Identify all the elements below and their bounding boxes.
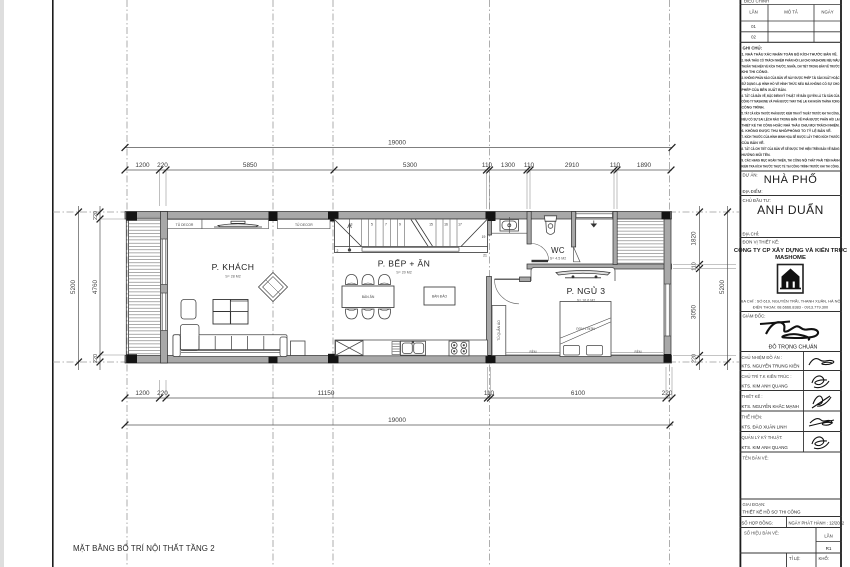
svg-text:GIÁM ĐỐC:: GIÁM ĐỐC: bbox=[743, 314, 766, 319]
svg-text:S= 28 M2: S= 28 M2 bbox=[225, 275, 240, 279]
svg-text:110: 110 bbox=[610, 162, 621, 169]
svg-text:ĐỖ TRỌNG CHUẨN: ĐỖ TRỌNG CHUẨN bbox=[769, 344, 818, 351]
svg-text:PHÉP CỦA BÊN XUẤT BẢN.: PHÉP CỦA BÊN XUẤT BẢN. bbox=[742, 87, 787, 92]
svg-text:SỬ DỤNG LẠI HÌNH HỒ VỀ HÌNH TH: SỬ DỤNG LẠI HÌNH HỒ VỀ HÌNH THỨC NẾU MÀ … bbox=[742, 81, 840, 86]
svg-text:9. CÁC HẠNG MỤC HOÀN THIỆN, TH: 9. CÁC HẠNG MỤC HOÀN THIỆN, THI CÔNG NỘI… bbox=[742, 158, 840, 163]
svg-text:TỦ QUẦN ÁO: TỦ QUẦN ÁO bbox=[496, 320, 501, 341]
svg-text:ĐƠN VỊ THIẾT KẾ:: ĐƠN VỊ THIẾT KẾ: bbox=[743, 240, 780, 245]
svg-text:110: 110 bbox=[484, 390, 495, 397]
svg-text:19: 19 bbox=[482, 235, 486, 239]
svg-text:5: 5 bbox=[371, 223, 373, 227]
svg-text:NẾU CÓ SỰ SAI LỆCH NÀO TRONG B: NẾU CÓ SỰ SAI LỆCH NÀO TRONG BẢN VẼ PHẢI… bbox=[742, 116, 840, 121]
svg-text:220: 220 bbox=[93, 211, 99, 220]
svg-text:220: 220 bbox=[93, 354, 99, 363]
svg-text:P. NGỦ 3: P. NGỦ 3 bbox=[567, 285, 606, 296]
svg-text:3050: 3050 bbox=[691, 304, 698, 319]
svg-text:5200: 5200 bbox=[70, 279, 77, 294]
svg-text:1890: 1890 bbox=[637, 162, 652, 169]
svg-text:RÈM: RÈM bbox=[529, 349, 536, 354]
svg-text:02: 02 bbox=[751, 35, 756, 40]
svg-text:KTS. KIM ANH QUANG: KTS. KIM ANH QUANG bbox=[742, 445, 789, 450]
svg-text:8. TẤT CẢ CHI TIẾT CỦA BẢN VẼ: 8. TẤT CẢ CHI TIẾT CỦA BẢN VẼ SẼ ĐƯỢC TH… bbox=[742, 146, 840, 151]
svg-text:ĐỊA CHỈ : SỐ 619, NGUYỄN TRÃI,: ĐỊA CHỈ : SỐ 619, NGUYỄN TRÃI, THANH XUÂ… bbox=[739, 299, 841, 304]
svg-text:17: 17 bbox=[458, 223, 462, 227]
svg-text:CHỦ NHIỆM ĐỒ ÁN :: CHỦ NHIỆM ĐỒ ÁN : bbox=[742, 355, 782, 360]
svg-text:R1: R1 bbox=[826, 546, 832, 551]
svg-text:CÔNG TRÌNH.: CÔNG TRÌNH. bbox=[742, 105, 765, 110]
svg-text:220: 220 bbox=[157, 390, 168, 397]
svg-text:CHỦ TRÌ T.K KIẾN TRÚC :: CHỦ TRÌ T.K KIẾN TRÚC : bbox=[742, 374, 792, 379]
svg-text:1820: 1820 bbox=[691, 231, 698, 246]
svg-text:110: 110 bbox=[482, 162, 493, 169]
svg-text:TỦ DECOR: TỦ DECOR bbox=[176, 222, 194, 227]
svg-text:110: 110 bbox=[524, 162, 535, 169]
svg-text:P. KHÁCH: P. KHÁCH bbox=[212, 262, 255, 272]
svg-text:KTS. NGUYỄN KHẮC MẠNH: KTS. NGUYỄN KHẮC MẠNH bbox=[742, 404, 799, 409]
svg-text:GHI CHÚ:: GHI CHÚ: bbox=[743, 46, 763, 51]
svg-text:NỆM 1 NGỦ: NỆM 1 NGỦ bbox=[576, 327, 595, 332]
svg-text:01: 01 bbox=[751, 24, 756, 29]
svg-text:CỦA BẢN VẼ.: CỦA BẢN VẼ. bbox=[742, 140, 765, 145]
svg-text:THIẾT KẾ :: THIẾT KẾ : bbox=[742, 394, 763, 399]
svg-text:3. KHÔNG PHẦN NÀO CỦA BẢN VẼ N: 3. KHÔNG PHẦN NÀO CỦA BẢN VẼ NÀY ĐƯỢC PH… bbox=[742, 75, 840, 80]
svg-text:KTS. ĐÀO XUÂN LINH: KTS. ĐÀO XUÂN LINH bbox=[742, 424, 787, 429]
svg-text:19000: 19000 bbox=[388, 140, 406, 147]
svg-text:2. NHÀ THẦU CÓ TRÁCH NHIỆM PHẢ: 2. NHÀ THẦU CÓ TRÁCH NHIỆM PHẢN HỒI LẠI … bbox=[742, 57, 840, 62]
svg-text:TỦ DECOR: TỦ DECOR bbox=[295, 222, 313, 227]
svg-text:CÔNG TY CP XÂY DỰNG VÀ KIẾN TR: CÔNG TY CP XÂY DỰNG VÀ KIẾN TRÚC bbox=[734, 246, 848, 254]
svg-text:KTS. KIM ANH QUANG: KTS. KIM ANH QUANG bbox=[742, 383, 789, 388]
svg-text:MASHOME: MASHOME bbox=[775, 255, 806, 261]
svg-text:1200: 1200 bbox=[135, 162, 150, 169]
svg-text:MÔ TẢ: MÔ TẢ bbox=[784, 10, 798, 15]
svg-text:P. BẾP + ĂN: P. BẾP + ĂN bbox=[378, 259, 431, 269]
svg-text:KHỔ:: KHỔ: bbox=[819, 556, 830, 561]
svg-text:WC: WC bbox=[551, 246, 565, 255]
svg-text:S= 20 M2: S= 20 M2 bbox=[396, 271, 411, 275]
svg-text:9: 9 bbox=[399, 223, 401, 227]
svg-text:5200: 5200 bbox=[719, 279, 726, 294]
svg-text:7: 7 bbox=[385, 223, 387, 227]
svg-text:220: 220 bbox=[157, 162, 168, 169]
svg-text:TÊN BẢN VẼ:: TÊN BẢN VẼ: bbox=[743, 456, 769, 461]
svg-text:THUẪN THỂ HIỆN VỀ KÍCH THƯỚC,: THUẪN THỂ HIỆN VỀ KÍCH THƯỚC, NGHĨA, CHI… bbox=[742, 63, 840, 68]
svg-text:ĐIỀU CHỈNH: ĐIỀU CHỈNH bbox=[744, 0, 769, 4]
svg-text:5300: 5300 bbox=[403, 162, 418, 169]
svg-text:7. KÍCH THƯỚC CỦA HÌNH MINH HỌ: 7. KÍCH THƯỚC CỦA HÌNH MINH HỌA SẼ ĐƯỢC … bbox=[742, 134, 840, 139]
svg-text:CÔNG TY MASHOME VÀ PHẢI ĐƯỢC T: CÔNG TY MASHOME VÀ PHẢI ĐƯỢC THAY THẾ LẠ… bbox=[742, 99, 840, 104]
svg-text:KIỂM TRA KÍCH THƯỚC THỰC TẾ TẠ: KIỂM TRA KÍCH THƯỚC THỰC TẾ TẠI CÔNG TRÌ… bbox=[742, 164, 840, 169]
svg-text:QUẢN LÝ KỸ THUẬT:: QUẢN LÝ KỸ THUẬT: bbox=[742, 435, 783, 440]
svg-text:1200: 1200 bbox=[135, 390, 150, 397]
svg-text:THỂ HIỆN:: THỂ HIỆN: bbox=[742, 415, 763, 420]
svg-text:6100: 6100 bbox=[571, 390, 586, 397]
svg-text:RÈM: RÈM bbox=[634, 349, 641, 354]
svg-text:5. TẤT CẢ KÍCH THƯỚC PHẢI ĐƯỢC: 5. TẤT CẢ KÍCH THƯỚC PHẢI ĐƯỢC KIỂM TRA … bbox=[742, 111, 840, 116]
svg-text:LẦN: LẦN bbox=[749, 10, 757, 15]
svg-text:THIẾT KẾ THI CÔNG HOẶC NHÀ THẦ: THIẾT KẾ THI CÔNG HOẶC NHÀ THẦU CHỊU MỌI… bbox=[742, 122, 840, 127]
svg-text:6. KHÔNG ĐƯỢC THU NHỎ/PHÓNG TO: 6. KHÔNG ĐƯỢC THU NHỎ/PHÓNG TO TỶ LỆ BẢN… bbox=[742, 128, 832, 133]
svg-text:MẶT BẰNG BỐ TRÍ NỘI THẤT TẦNG: MẶT BẰNG BỐ TRÍ NỘI THẤT TẦNG 2 bbox=[73, 543, 215, 553]
svg-text:DỰ ÁN:: DỰ ÁN: bbox=[743, 173, 758, 178]
svg-text:2910: 2910 bbox=[565, 162, 580, 169]
svg-text:1. NHÀ THẦU XÁC NHẬN TOÀN BỘ K: 1. NHÀ THẦU XÁC NHẬN TOÀN BỘ KÍCH THƯỚC … bbox=[742, 52, 838, 57]
svg-text:220: 220 bbox=[662, 390, 673, 397]
svg-text:16: 16 bbox=[444, 223, 448, 227]
svg-text:BÀN ĐẢO: BÀN ĐẢO bbox=[432, 294, 448, 299]
svg-text:110: 110 bbox=[692, 262, 698, 271]
svg-text:THIẾT KẾ HỒ SƠ THI CÔNG: THIẾT KẾ HỒ SƠ THI CÔNG bbox=[743, 510, 802, 515]
svg-text:4760: 4760 bbox=[92, 279, 99, 294]
svg-text:SỐ HIỆU BẢN VẼ:: SỐ HIỆU BẢN VẼ: bbox=[744, 531, 779, 536]
svg-text:NHÀ PHỐ: NHÀ PHỐ bbox=[764, 172, 818, 186]
svg-text:21: 21 bbox=[483, 254, 487, 258]
svg-text:SỐ HỢP ĐỒNG:: SỐ HỢP ĐỒNG: bbox=[742, 521, 773, 526]
svg-text:KHI THI CÔNG.: KHI THI CÔNG. bbox=[742, 69, 769, 74]
svg-text:TỈ LỆ:: TỈ LỆ: bbox=[789, 556, 800, 561]
svg-text:19000: 19000 bbox=[388, 417, 406, 424]
svg-text:GIAI ĐOẠN:: GIAI ĐOẠN: bbox=[743, 502, 766, 507]
svg-text:ĐỊA ĐIỂM:: ĐỊA ĐIỂM: bbox=[743, 189, 763, 194]
svg-text:4. TẤT CẢ BẢN VẼ, ĐẶC ĐIỂM KỸ: 4. TẤT CẢ BẢN VẼ, ĐẶC ĐIỂM KỸ THUẬT VỀ B… bbox=[742, 93, 840, 98]
svg-text:BÀN ĂN: BÀN ĂN bbox=[362, 295, 375, 299]
svg-text:2: 2 bbox=[337, 249, 339, 253]
svg-text:11150: 11150 bbox=[318, 390, 335, 397]
svg-text:5850: 5850 bbox=[243, 162, 258, 169]
svg-text:S= 4.5 M2: S= 4.5 M2 bbox=[550, 257, 566, 261]
svg-text:NGÀY: NGÀY bbox=[821, 10, 833, 15]
svg-text:15: 15 bbox=[429, 223, 433, 227]
svg-text:ĐIỆN THOẠI: 08.6666.8383 - 091: ĐIỆN THOẠI: 08.6666.8383 - 0913.779.300 bbox=[753, 305, 829, 310]
svg-text:NGÀY PHÁT HÀNH : 12/2022: NGÀY PHÁT HÀNH : 12/2022 bbox=[789, 521, 845, 526]
svg-text:LẦN: LẦN bbox=[824, 534, 832, 539]
svg-text:1300: 1300 bbox=[501, 162, 516, 169]
svg-text:KTS. NGUYỄN TRUNG KIÊN: KTS. NGUYỄN TRUNG KIÊN bbox=[742, 363, 800, 368]
svg-text:ANH DUẨN: ANH DUẨN bbox=[757, 202, 824, 217]
svg-text:HƯỚNG MŨI TÊN.: HƯỚNG MŨI TÊN. bbox=[742, 152, 771, 157]
svg-text:ĐỊA CHỈ:: ĐỊA CHỈ: bbox=[743, 232, 760, 237]
